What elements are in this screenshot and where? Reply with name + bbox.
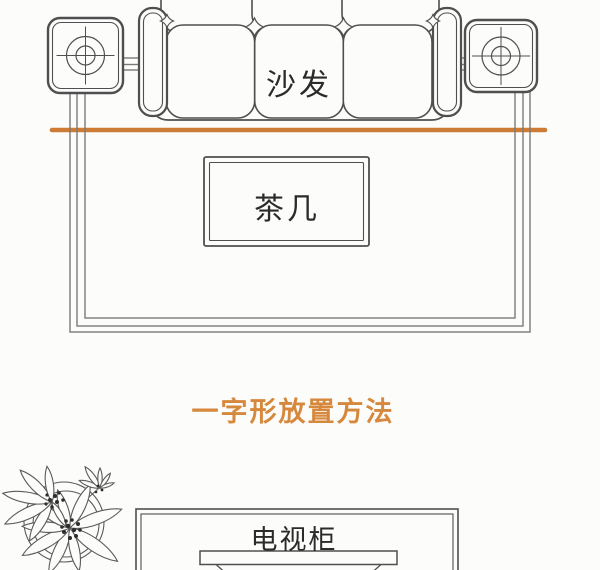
furniture-layout-diagram: 沙发 茶几 一字形放置方法 电视柜 [0,0,600,570]
layout-caption: 一字形放置方法 [192,390,395,429]
side-table-right-icon [465,20,537,92]
coffee-table-label: 茶几 [254,184,320,228]
sofa-armrest-left [139,8,167,116]
sofa-label: 沙发 [266,60,332,104]
potted-plant-icon [2,465,124,570]
tv-cabinet-label: 电视柜 [251,518,338,557]
sofa-armrest-right [433,8,461,116]
side-table-left-icon [48,18,123,93]
